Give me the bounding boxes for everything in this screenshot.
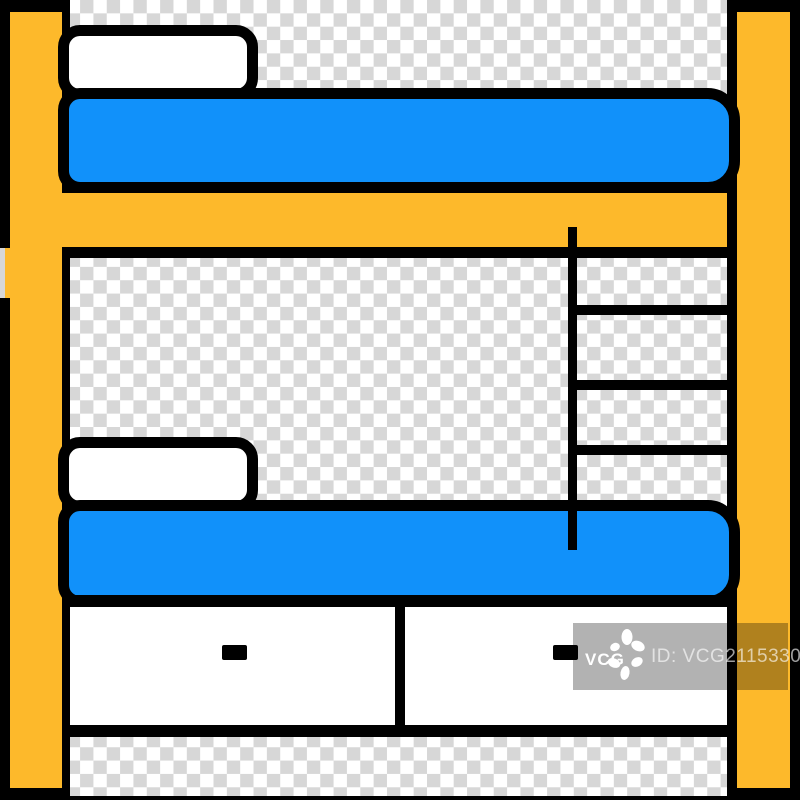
top-bunk-mattress (58, 88, 740, 193)
top-bunk-frame-bar (62, 183, 727, 258)
ladder-rail (568, 227, 577, 550)
watermark: VCG ID: VCG211533028746 (573, 623, 788, 690)
watermark-id-text: ID: VCG211533028746 (651, 646, 800, 668)
ladder-rung (568, 305, 737, 315)
vcg-logo: VCG (585, 628, 645, 686)
bottom-edge-line (0, 796, 800, 800)
drawer-left (70, 607, 395, 725)
drawer-handle-left (222, 645, 247, 660)
vcg-pinwheel-icon (607, 629, 647, 681)
transparency-checkerboard-background: VCG ID: VCG211533028746 (0, 0, 800, 800)
bottom-bunk-mattress (58, 500, 740, 607)
ladder-rung (568, 380, 737, 390)
post-left-notch-yellow (5, 248, 62, 298)
ladder-rung (568, 445, 737, 455)
